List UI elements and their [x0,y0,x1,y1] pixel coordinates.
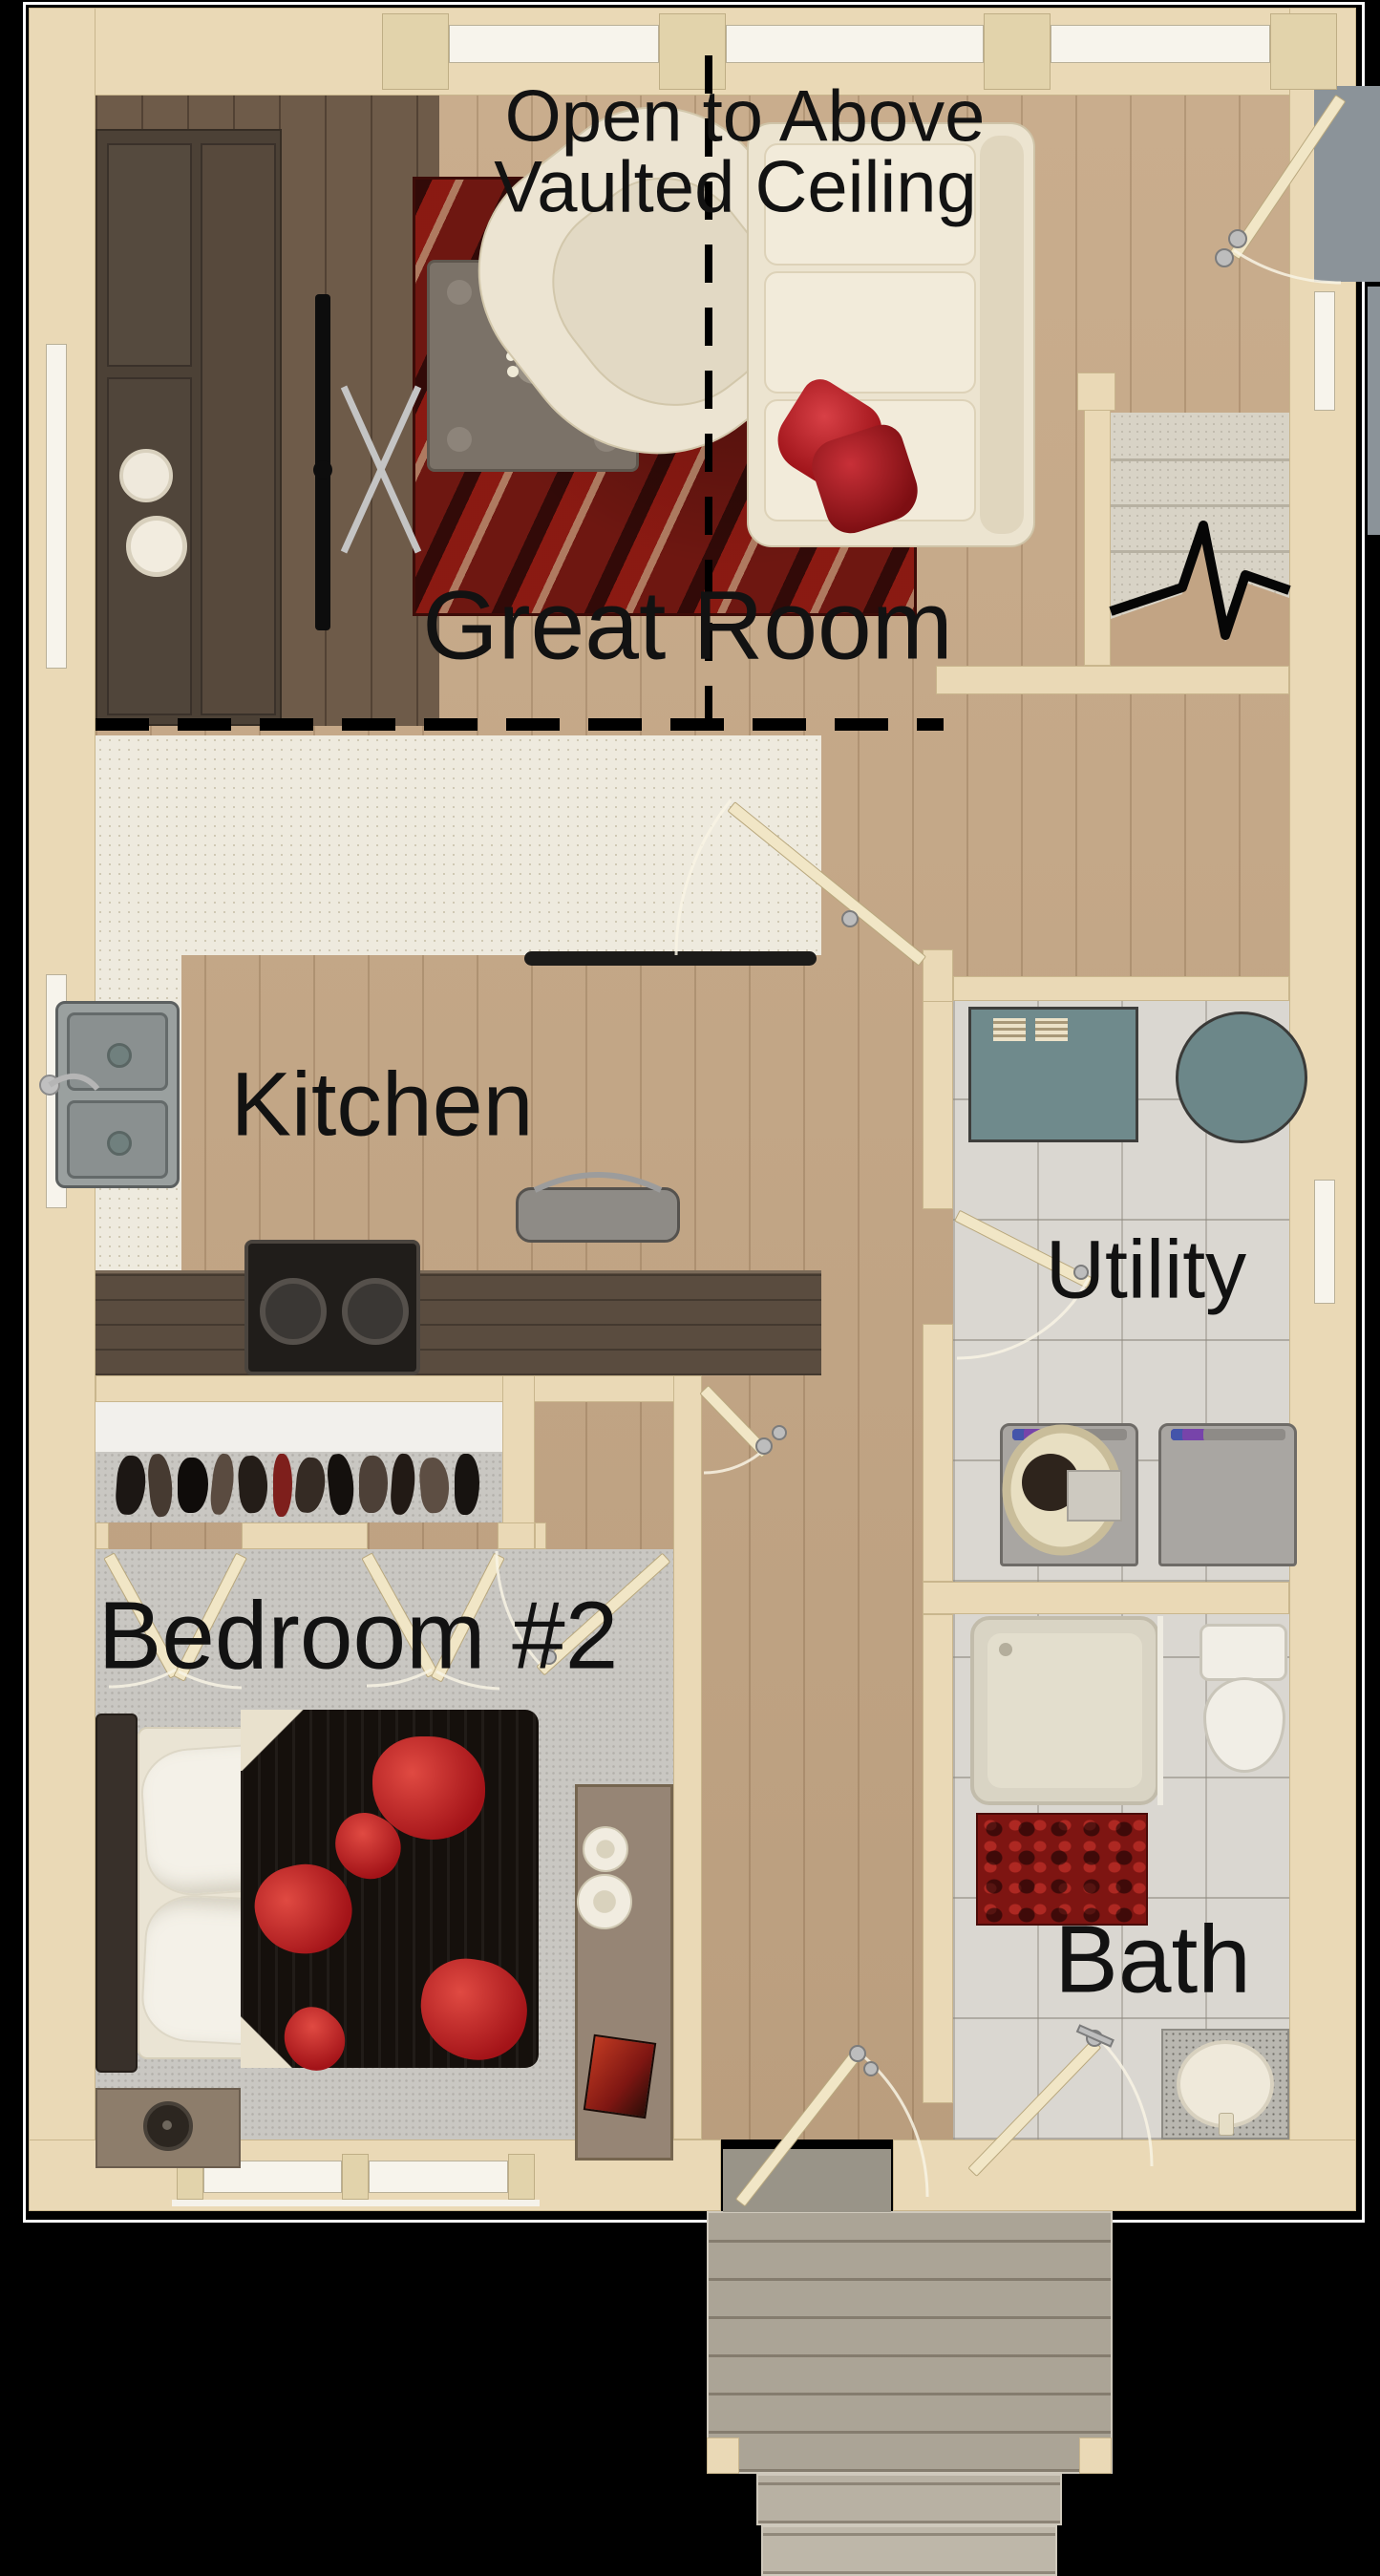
window-right-stairs [1314,291,1335,411]
comforter-fold [241,1710,327,1771]
room-label-kitchen: Kitchen [231,1054,534,1158]
room-label-great-room: Great Room [422,570,953,682]
wall-closet-front-2 [242,1522,368,1549]
sofa-back [980,136,1024,534]
sofa-cushion [764,271,976,394]
wall-closet-front-1 [96,1522,109,1549]
window-mullion [342,2154,369,2200]
window-top-1 [449,25,659,63]
deck-post-right [1079,2438,1112,2474]
console-shelf [107,143,192,367]
burner [342,1278,409,1345]
counter-rail [524,951,817,966]
candle [583,1826,628,1872]
deck-post-left [707,2438,739,2474]
rear-deck [707,2211,1113,2474]
window-bedroom-2 [369,2161,508,2193]
room-label-utility: Utility [1046,1224,1246,1318]
wall-closet-back [96,1375,678,1402]
wall-utility-west-lower [923,1324,953,1582]
wall-utility-bath-divider [923,1582,1289,1614]
wall-bath-west [923,1614,953,2103]
dryer [1158,1423,1297,1566]
wall-stair-side [1084,386,1111,666]
bed-headboard [96,1714,138,2073]
wall-stair-bottom [936,666,1289,694]
mug [119,449,173,502]
book [584,2034,656,2118]
wall-bedroom-doorjamb [535,1522,546,1549]
table-leg [447,427,472,452]
roaster [516,1187,680,1243]
candle [577,1874,632,1929]
wall-utility-top [953,976,1289,1001]
room-label-bath: Bath [1054,1905,1251,2015]
stair-newel-post [1077,373,1115,411]
dryer-controls [1171,1429,1285,1440]
tv [315,294,330,630]
wall-closet-front-3 [498,1522,535,1549]
burner [260,1278,327,1345]
window-jamb [508,2154,535,2200]
wall-bottom-right [893,2140,1356,2211]
window-right-utility [1314,1180,1335,1304]
window-mullion [984,13,1051,90]
window-left-greatroom [46,344,67,669]
striped-pad [993,1018,1026,1041]
stairs [1111,413,1289,666]
toilet-tank [1200,1624,1287,1681]
shower-drain [999,1643,1012,1656]
speaker-dot [162,2120,172,2130]
window-mullion [382,13,449,90]
deck-step-2 [761,2525,1057,2576]
note-vaulted-ceiling: Vaulted Ceiling [494,146,977,229]
deck-step-1 [756,2474,1062,2525]
vanity-faucet [1219,2113,1234,2136]
porch-strip [1368,287,1380,535]
kitchen-peninsula-counter [96,735,821,955]
washer [1000,1423,1138,1566]
sink-drain [107,1131,132,1156]
closet-shelf [96,1402,502,1454]
console-shelf [201,143,276,715]
window-mullion [1270,13,1337,90]
shower-glass [1157,1616,1163,1805]
striped-pad [1035,1018,1068,1041]
sink-drain [107,1043,132,1068]
room-label-bedroom2: Bedroom #2 [98,1582,619,1692]
washer-controls [1012,1429,1127,1440]
kitchen-lower-counter [96,1270,821,1375]
window-top-3 [1051,25,1270,63]
wall-utility-west-upper [923,1001,953,1209]
stair-tread-line [1111,458,1289,461]
floor-plan: Open to Above Vaulted Ceiling Great Room… [0,0,1380,2576]
wall-bedroom-east [673,1375,702,2140]
table-leg [447,280,472,305]
mug [126,516,187,577]
door-post [923,949,953,1003]
window-top-2 [726,25,984,63]
utility-round-rug [1176,1011,1307,1143]
vaulted-ceiling-dashed-line-horizontal [96,718,944,731]
window-sill [172,2200,540,2206]
shower-pan [987,1633,1142,1788]
